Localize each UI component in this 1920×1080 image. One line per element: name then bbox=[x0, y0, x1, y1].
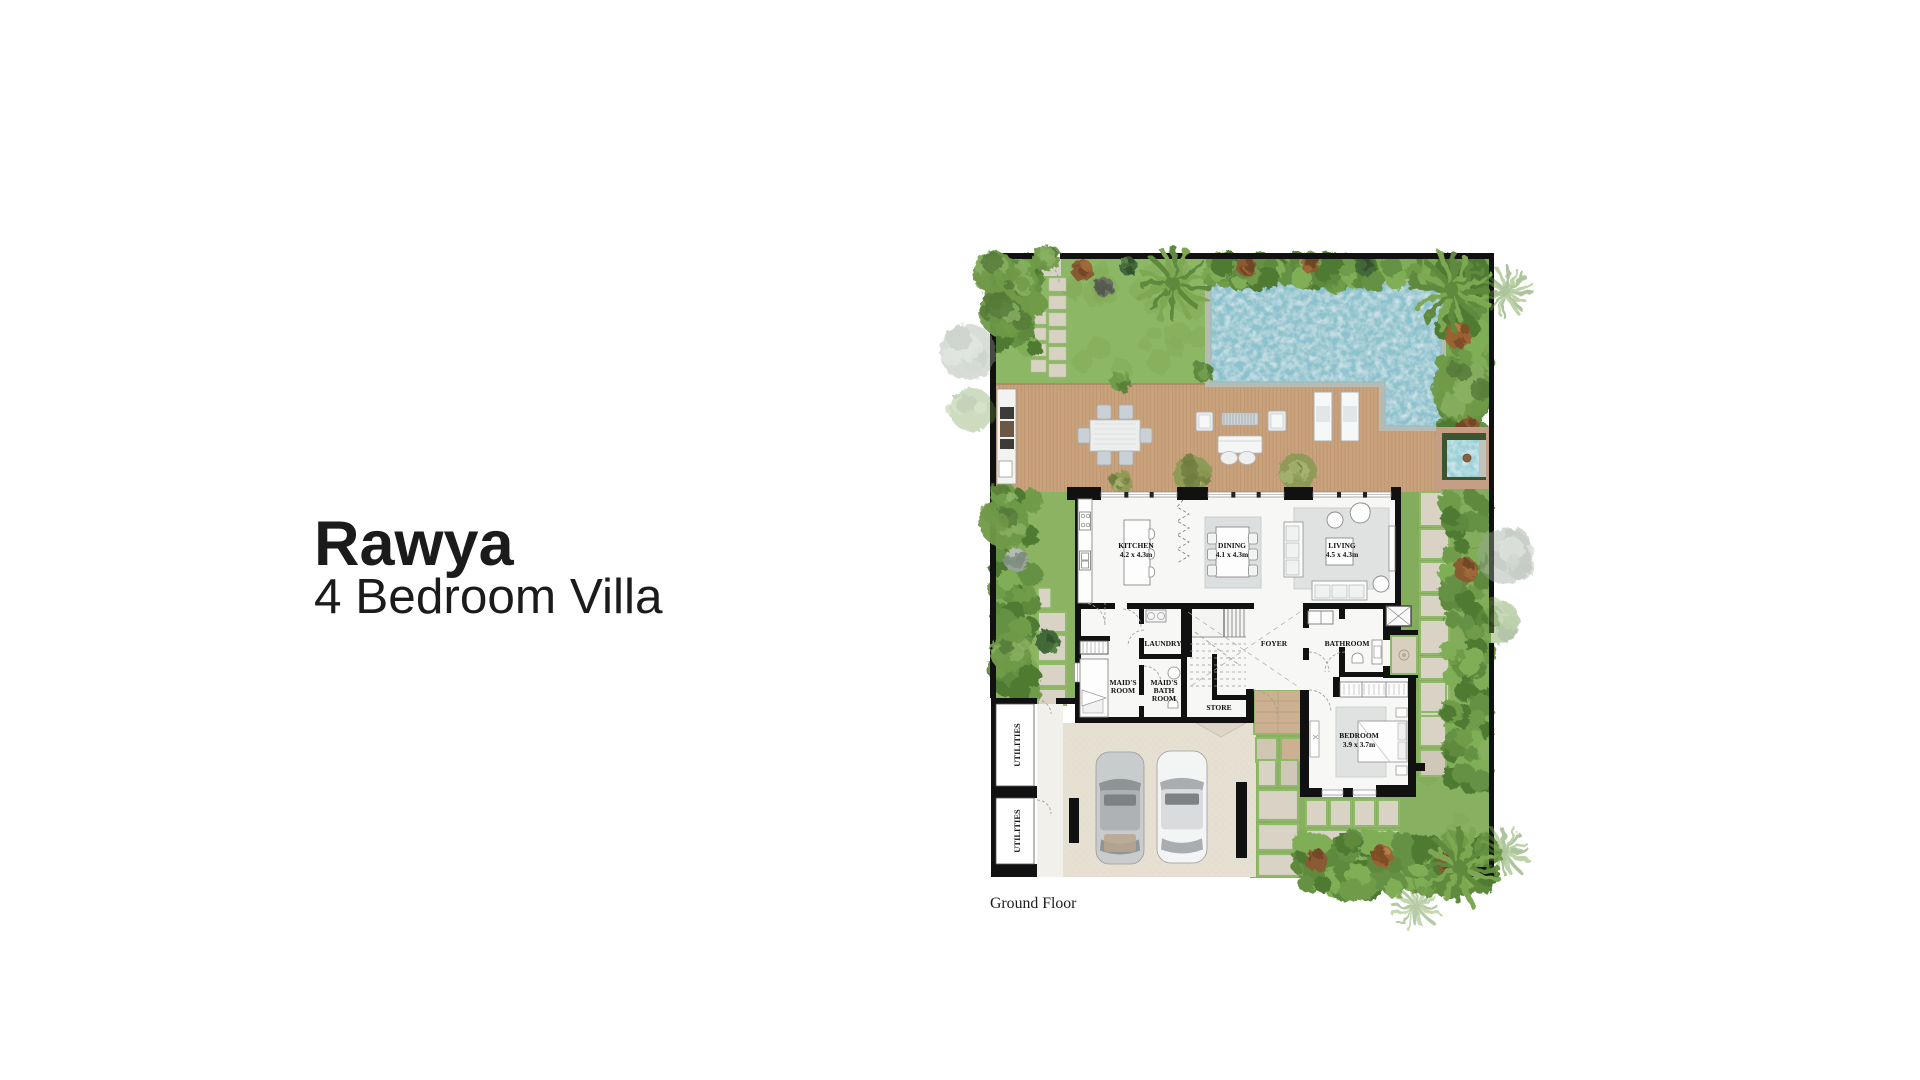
svg-text:ROOM: ROOM bbox=[1152, 694, 1176, 703]
svg-text:4.1 x 4.3m: 4.1 x 4.3m bbox=[1216, 550, 1249, 559]
svg-text:BEDROOM: BEDROOM bbox=[1339, 731, 1379, 740]
svg-text:BATHROOM: BATHROOM bbox=[1325, 639, 1370, 648]
svg-text:4.5 x 4.3m: 4.5 x 4.3m bbox=[1326, 550, 1359, 559]
svg-text:3.9 x 3.7m: 3.9 x 3.7m bbox=[1343, 740, 1376, 749]
svg-text:DINING: DINING bbox=[1218, 541, 1246, 550]
svg-text:FOYER: FOYER bbox=[1261, 639, 1288, 648]
svg-text:Ground Floor: Ground Floor bbox=[990, 895, 1077, 912]
svg-text:4.2 x 4.3m: 4.2 x 4.3m bbox=[1120, 550, 1153, 559]
svg-text:STORE: STORE bbox=[1206, 703, 1231, 712]
svg-text:UTILITIES: UTILITIES bbox=[1012, 809, 1022, 853]
svg-text:ROOM: ROOM bbox=[1111, 686, 1135, 695]
svg-text:LAUNDRY: LAUNDRY bbox=[1144, 639, 1182, 648]
svg-text:UTILITIES: UTILITIES bbox=[1012, 723, 1022, 767]
svg-text:4 Bedroom Villa: 4 Bedroom Villa bbox=[314, 569, 663, 624]
svg-text:KITCHEN: KITCHEN bbox=[1118, 541, 1154, 550]
svg-text:LIVING: LIVING bbox=[1328, 541, 1356, 550]
